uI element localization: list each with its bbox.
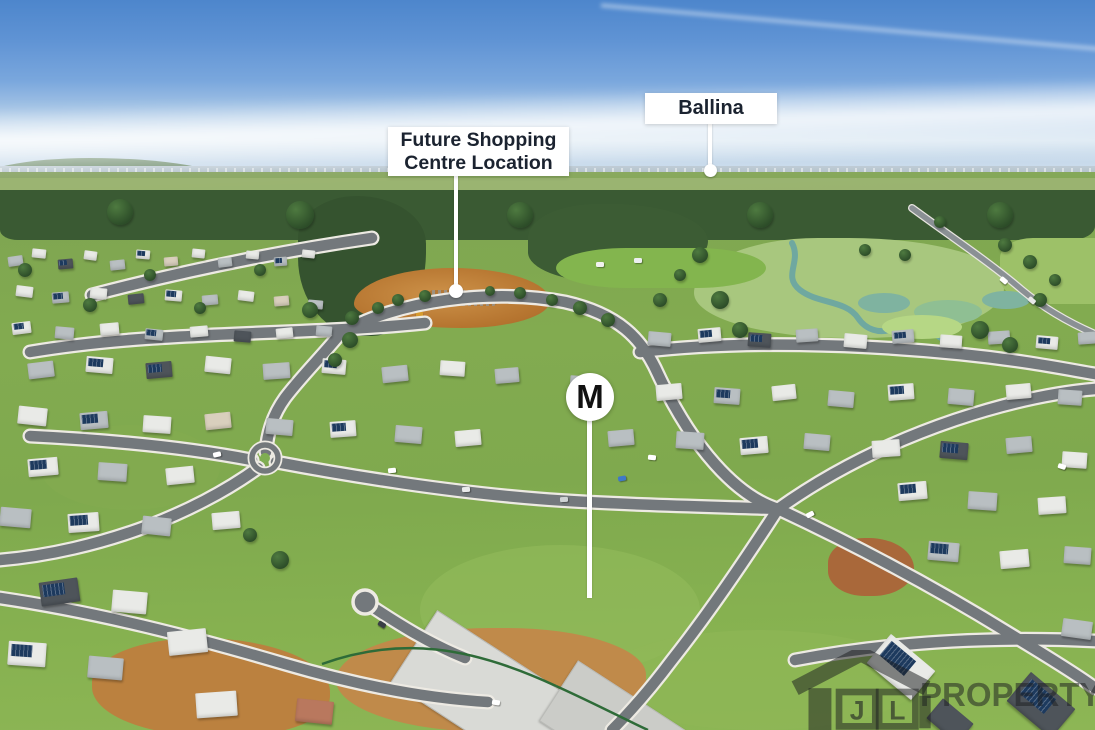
house-roof: [381, 365, 409, 384]
house-roof: [11, 321, 31, 335]
tree: [507, 202, 533, 228]
tree: [747, 202, 773, 228]
house-roof: [647, 331, 671, 347]
house-roof: [887, 383, 914, 401]
house-roof: [0, 507, 32, 529]
brand-letter-j: J: [850, 696, 865, 726]
tree: [899, 249, 911, 261]
car: [377, 620, 386, 628]
solar-panels: [750, 334, 763, 342]
tree: [302, 302, 318, 318]
house-roof: [111, 590, 148, 615]
house-roof: [803, 433, 830, 451]
house-roof: [55, 326, 75, 340]
house-roof: [144, 328, 163, 341]
future-site-dot: [449, 284, 463, 298]
house-roof: [136, 249, 151, 259]
tree: [419, 290, 431, 302]
tree: [674, 269, 686, 281]
house-roof: [237, 290, 254, 302]
house-roof: [39, 577, 81, 606]
house-roof: [110, 259, 126, 271]
lot-marker-m: M: [566, 373, 614, 421]
tree: [1023, 255, 1037, 269]
house-roof: [494, 367, 519, 384]
solar-panels: [930, 543, 948, 554]
solar-panels: [716, 389, 731, 398]
house-roof: [218, 257, 233, 268]
house-roof: [454, 429, 481, 447]
house-roof: [274, 257, 288, 267]
ballina-label-text: Ballina: [678, 97, 744, 120]
future-label-line2: Centre Location: [404, 152, 552, 175]
house-roof: [87, 656, 124, 681]
house-roof: [394, 425, 422, 444]
tree: [732, 322, 748, 338]
house-roof: [771, 384, 796, 401]
house-roof: [274, 295, 290, 306]
lot-marker-letter: M: [576, 378, 604, 416]
tree: [653, 293, 667, 307]
house-roof: [27, 457, 58, 478]
house-roof: [891, 329, 914, 344]
house-roof: [827, 390, 854, 408]
brand-wordmark: PROPERTY: [920, 676, 1095, 714]
tree: [254, 264, 266, 276]
solar-panels: [82, 414, 98, 424]
house-roof: [27, 360, 55, 379]
solar-panels: [42, 582, 65, 597]
house-roof: [871, 439, 900, 458]
car: [492, 699, 501, 705]
house-roof: [192, 248, 206, 258]
solar-panels: [59, 260, 68, 266]
solar-panels: [890, 386, 905, 395]
solar-panels: [137, 251, 145, 256]
solar-panels: [275, 258, 282, 263]
tree: [601, 313, 615, 327]
tree: [573, 301, 587, 315]
car: [618, 475, 627, 481]
solar-panels: [88, 358, 103, 367]
house-roof: [17, 406, 48, 427]
house-roof: [748, 332, 772, 348]
house-roof: [897, 481, 927, 501]
solar-panels: [332, 423, 347, 432]
house-roof: [234, 330, 252, 342]
house-roof: [7, 641, 47, 668]
solar-panels: [900, 484, 917, 494]
tree: [859, 244, 871, 256]
house-roof: [204, 356, 232, 375]
aerial-photo: Future Shopping Centre Location Ballina …: [0, 0, 1095, 730]
solar-panels: [146, 330, 156, 337]
tree: [692, 247, 708, 263]
tree: [485, 286, 495, 296]
house-roof: [52, 291, 70, 303]
solar-panels: [53, 293, 63, 299]
tree: [971, 321, 989, 339]
house-roof: [246, 250, 260, 259]
tree: [998, 238, 1012, 252]
marker-leader-line: [587, 418, 592, 598]
house-roof: [142, 415, 171, 434]
house-roof: [262, 362, 290, 380]
solar-panels: [893, 331, 906, 339]
house-roof: [97, 462, 127, 482]
house-roof: [940, 334, 963, 349]
solar-panels: [30, 460, 47, 470]
car: [213, 451, 222, 457]
house-roof: [999, 549, 1029, 569]
house-roof: [141, 516, 172, 537]
solar-panels: [13, 323, 24, 330]
solar-panels: [11, 644, 33, 657]
house-roof: [165, 466, 195, 486]
tree: [328, 353, 342, 367]
tree: [934, 216, 946, 228]
house-roof: [967, 491, 997, 511]
house-roof: [145, 361, 172, 379]
house-roof: [739, 436, 768, 455]
tree: [1002, 337, 1018, 353]
car: [596, 262, 604, 267]
house-roof: [796, 328, 819, 343]
house-roof: [265, 418, 293, 436]
house-roof: [167, 628, 208, 656]
house-roof: [164, 256, 179, 266]
house-roof: [190, 325, 209, 338]
house-roof: [697, 327, 721, 343]
tree: [18, 263, 32, 277]
house-roof: [607, 429, 634, 447]
house-roof: [1061, 618, 1093, 640]
solar-panels: [699, 329, 712, 337]
house-roof: [32, 248, 47, 258]
house-roof: [1035, 335, 1058, 350]
house-roof: [128, 293, 145, 305]
house-roof: [1058, 389, 1083, 406]
tree: [345, 311, 359, 325]
house-roof: [67, 512, 99, 533]
tree: [271, 551, 289, 569]
house-roof: [204, 412, 232, 431]
ballina-leader-line: [708, 124, 712, 166]
solar-panels: [742, 439, 758, 449]
car: [388, 468, 396, 473]
tree: [711, 291, 729, 309]
solar-panels: [166, 291, 176, 297]
tree: [286, 201, 314, 229]
car: [634, 258, 642, 263]
tree: [107, 199, 133, 225]
tree: [144, 269, 156, 281]
house-roof: [843, 333, 867, 349]
house-roof: [211, 511, 240, 530]
brand-letter-l: L: [889, 696, 905, 726]
tree: [392, 294, 404, 306]
solar-panels: [942, 443, 958, 453]
house-roof: [85, 356, 113, 374]
house-roof: [927, 541, 960, 563]
tree: [1049, 274, 1061, 286]
tree: [83, 298, 97, 312]
house-roof: [79, 411, 108, 430]
tree: [987, 202, 1013, 228]
house-roof: [440, 360, 466, 377]
house-roof: [1005, 436, 1032, 454]
house-roof: [947, 388, 974, 406]
house-roof: [15, 285, 33, 298]
houses-layer: [0, 0, 1095, 730]
car: [805, 510, 814, 518]
brand-house-icon: J L: [786, 650, 936, 730]
tree: [342, 332, 358, 348]
house-roof: [713, 387, 740, 405]
tree: [372, 302, 384, 314]
house-roof: [316, 325, 333, 336]
house-roof: [1037, 496, 1066, 515]
future-site-leader-line: [454, 176, 458, 286]
house-roof: [302, 249, 316, 258]
car: [462, 487, 470, 492]
car: [999, 276, 1008, 285]
house-roof: [675, 431, 704, 450]
house-roof: [1078, 331, 1095, 344]
house-roof: [276, 327, 294, 339]
house-roof: [939, 441, 968, 460]
tree: [514, 287, 526, 299]
house-roof: [100, 322, 120, 336]
solar-panels: [148, 364, 163, 373]
solar-panels: [70, 515, 88, 526]
house-roof: [295, 698, 334, 725]
future-label-line1: Future Shopping: [401, 129, 557, 152]
tree: [243, 528, 257, 542]
house-roof: [83, 250, 97, 261]
ballina-label: Ballina: [645, 93, 777, 124]
house-roof: [1005, 383, 1031, 400]
house-roof: [329, 420, 356, 438]
car: [560, 497, 568, 502]
house-roof: [1063, 546, 1091, 565]
house-roof: [58, 258, 74, 269]
house-roof: [655, 383, 682, 401]
car: [648, 455, 656, 460]
solar-panels: [1038, 337, 1051, 345]
ballina-dot: [704, 164, 717, 177]
tree: [546, 294, 558, 306]
house-roof: [165, 289, 183, 301]
house-roof: [195, 691, 238, 719]
tree: [194, 302, 206, 314]
future-shopping-centre-label: Future Shopping Centre Location: [388, 127, 569, 176]
